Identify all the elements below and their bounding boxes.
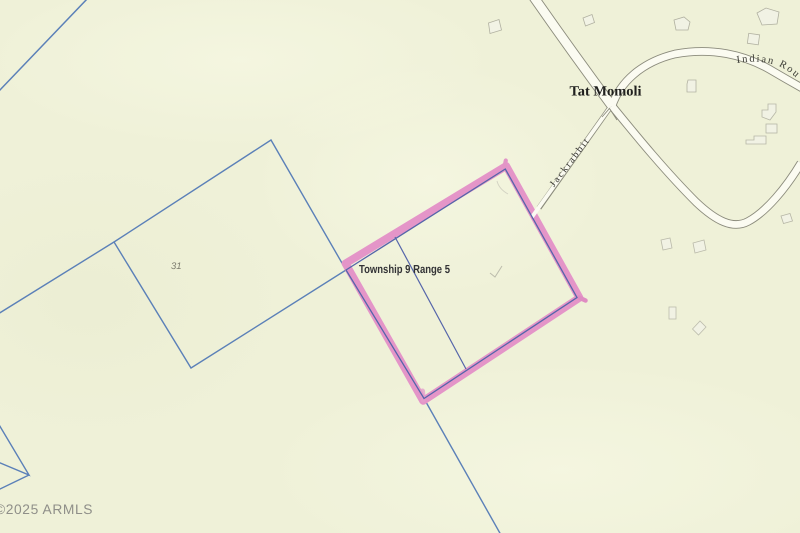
svg-text:Township 9 Range 5: Township 9 Range 5 — [359, 263, 450, 276]
svg-text:31: 31 — [171, 261, 182, 272]
svg-text:©2025 ARMLS: ©2025 ARMLS — [0, 502, 93, 517]
svg-text:Tat Momoli: Tat Momoli — [570, 84, 642, 100]
